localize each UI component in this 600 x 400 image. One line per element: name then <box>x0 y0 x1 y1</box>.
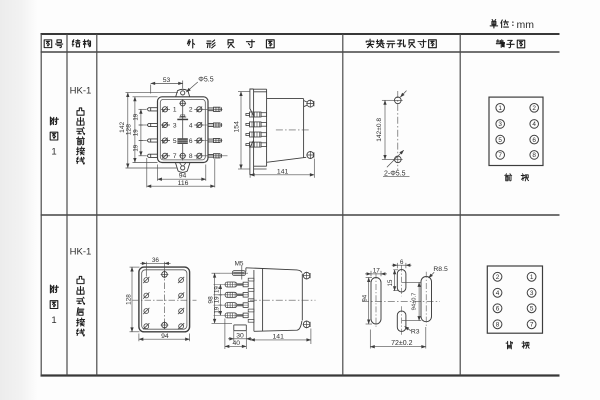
svg-text:4: 4 <box>189 122 193 129</box>
svg-text:3: 3 <box>530 290 534 297</box>
svg-text:6: 6 <box>496 306 500 313</box>
svg-text:6: 6 <box>189 138 193 145</box>
svg-text:HK-1: HK-1 <box>70 247 92 258</box>
svg-text:8: 8 <box>532 152 536 159</box>
svg-text:5: 5 <box>530 306 534 313</box>
svg-text:1: 1 <box>498 105 502 112</box>
svg-text:128: 128 <box>125 294 132 305</box>
svg-text:94: 94 <box>161 333 169 340</box>
svg-text:5: 5 <box>498 137 502 144</box>
svg-text:6: 6 <box>532 137 536 144</box>
svg-text:1: 1 <box>51 315 56 326</box>
svg-text:19: 19 <box>213 306 220 313</box>
svg-text:19: 19 <box>213 296 220 303</box>
svg-text:40: 40 <box>233 340 241 347</box>
svg-text:17: 17 <box>373 268 381 275</box>
svg-text:3: 3 <box>498 121 502 128</box>
svg-text:116: 116 <box>178 180 189 187</box>
svg-text:4: 4 <box>532 121 536 128</box>
svg-text:7: 7 <box>173 153 177 160</box>
svg-text:R3: R3 <box>411 329 420 336</box>
svg-text:19: 19 <box>213 286 220 293</box>
svg-text:2: 2 <box>496 274 500 281</box>
svg-text:1: 1 <box>173 107 177 114</box>
svg-text:2-Φ5.5: 2-Φ5.5 <box>384 171 406 178</box>
svg-text:8: 8 <box>189 153 193 160</box>
svg-text:1: 1 <box>51 147 56 158</box>
svg-text:Φ5.5: Φ5.5 <box>198 77 213 84</box>
svg-text:19: 19 <box>132 144 139 151</box>
svg-text:2: 2 <box>532 105 536 112</box>
svg-text:3: 3 <box>173 122 177 129</box>
svg-text:2: 2 <box>189 107 193 114</box>
svg-text:19: 19 <box>132 129 139 136</box>
svg-text:53: 53 <box>163 77 171 84</box>
svg-text:141: 141 <box>273 334 285 341</box>
svg-text:36: 36 <box>152 257 160 264</box>
svg-text:5: 5 <box>173 138 177 145</box>
svg-text:HK-1: HK-1 <box>70 86 92 97</box>
svg-text:94: 94 <box>361 294 368 301</box>
svg-text:7: 7 <box>530 322 534 329</box>
svg-text:30: 30 <box>236 332 244 339</box>
svg-text:94±0.7: 94±0.7 <box>411 293 417 311</box>
svg-text:1: 1 <box>530 274 534 281</box>
svg-text:94: 94 <box>179 173 187 180</box>
svg-text:7: 7 <box>498 152 502 159</box>
svg-text:142±0.8: 142±0.8 <box>376 118 383 142</box>
svg-text:72±0.2: 72±0.2 <box>391 340 412 347</box>
svg-text:15: 15 <box>388 279 394 286</box>
svg-text:4: 4 <box>496 290 500 297</box>
svg-text:M5: M5 <box>235 260 244 267</box>
svg-text:R8.5: R8.5 <box>433 266 448 273</box>
svg-text:141: 141 <box>277 168 289 175</box>
svg-text:19: 19 <box>132 113 139 120</box>
svg-text:154: 154 <box>234 121 241 133</box>
svg-text:6: 6 <box>400 259 404 266</box>
svg-text:8: 8 <box>496 322 500 329</box>
svg-text:mm: mm <box>517 19 535 31</box>
